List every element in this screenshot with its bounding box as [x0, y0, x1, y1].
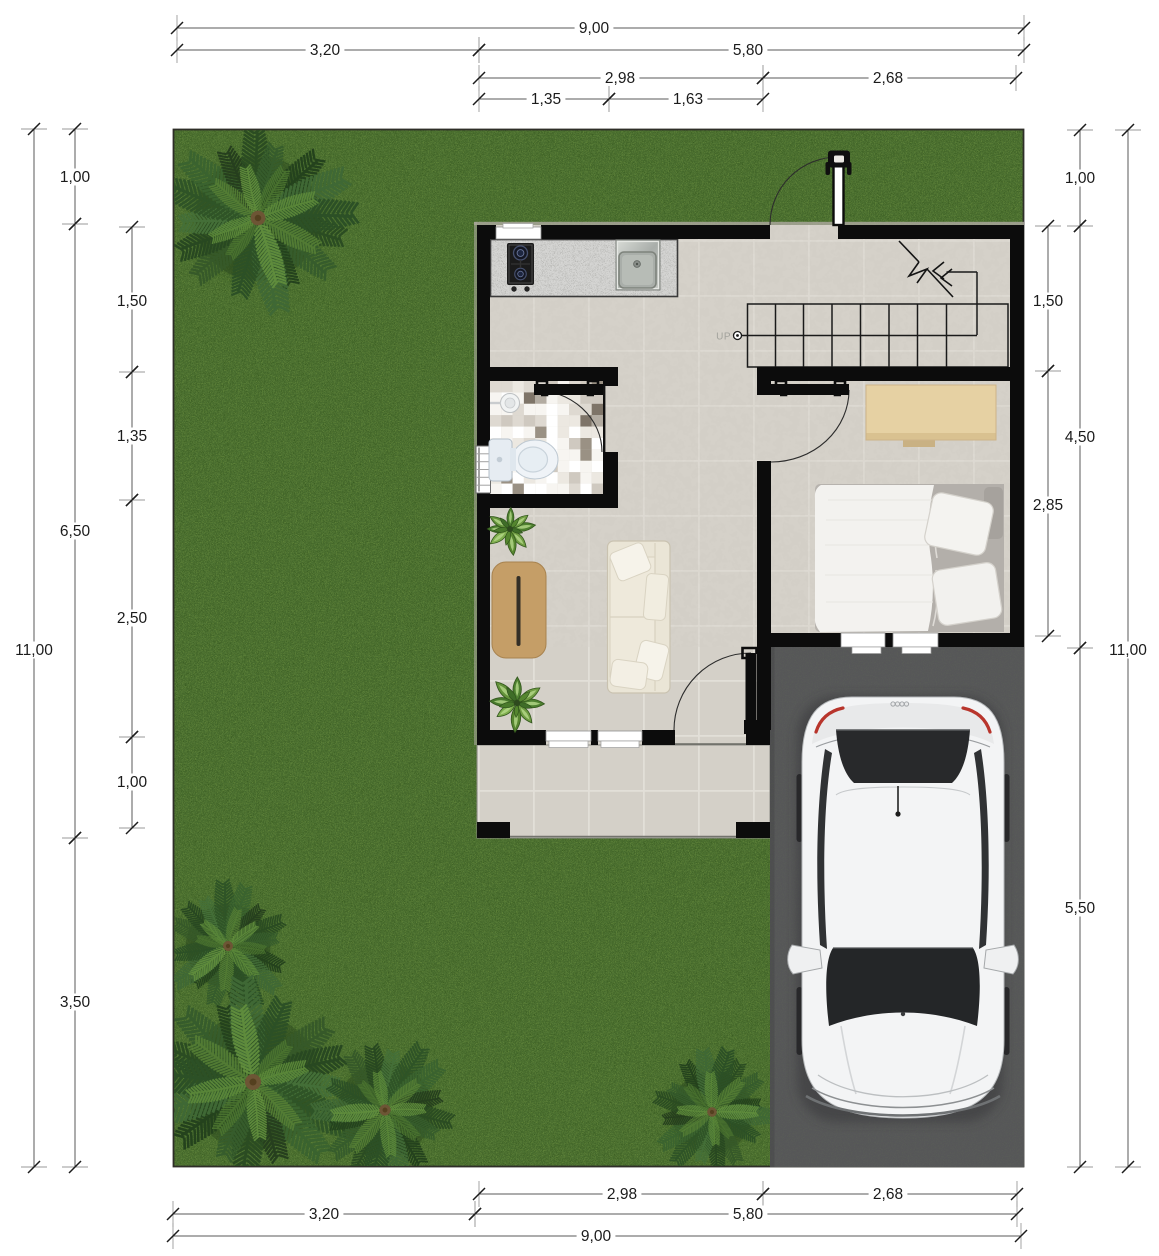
- svg-text:1,63: 1,63: [673, 91, 703, 108]
- svg-text:5,80: 5,80: [733, 1206, 764, 1223]
- svg-text:3,20: 3,20: [310, 42, 341, 59]
- svg-text:UP: UP: [716, 332, 731, 343]
- svg-text:4,50: 4,50: [1065, 429, 1096, 446]
- svg-text:2,98: 2,98: [607, 1186, 637, 1203]
- svg-text:1,00: 1,00: [117, 774, 148, 791]
- svg-text:2,68: 2,68: [873, 1186, 903, 1203]
- svg-text:1,50: 1,50: [117, 293, 148, 310]
- svg-text:9,00: 9,00: [579, 20, 610, 37]
- svg-text:2,50: 2,50: [117, 610, 148, 627]
- svg-text:2,98: 2,98: [605, 70, 635, 87]
- svg-text:3,20: 3,20: [309, 1206, 340, 1223]
- svg-text:1,35: 1,35: [531, 91, 561, 108]
- svg-text:2,68: 2,68: [873, 70, 903, 87]
- svg-text:11,00: 11,00: [1109, 642, 1147, 659]
- svg-text:1,00: 1,00: [60, 169, 91, 186]
- svg-text:1,00: 1,00: [1065, 170, 1096, 187]
- svg-text:5,80: 5,80: [733, 42, 764, 59]
- svg-text:5,50: 5,50: [1065, 900, 1096, 917]
- svg-text:11,00: 11,00: [15, 642, 53, 659]
- svg-text:6,50: 6,50: [60, 523, 91, 540]
- svg-text:3,50: 3,50: [60, 994, 91, 1011]
- svg-text:1,35: 1,35: [117, 428, 147, 445]
- svg-text:2,85: 2,85: [1033, 497, 1063, 514]
- svg-text:1,50: 1,50: [1033, 293, 1064, 310]
- svg-text:9,00: 9,00: [581, 1228, 612, 1245]
